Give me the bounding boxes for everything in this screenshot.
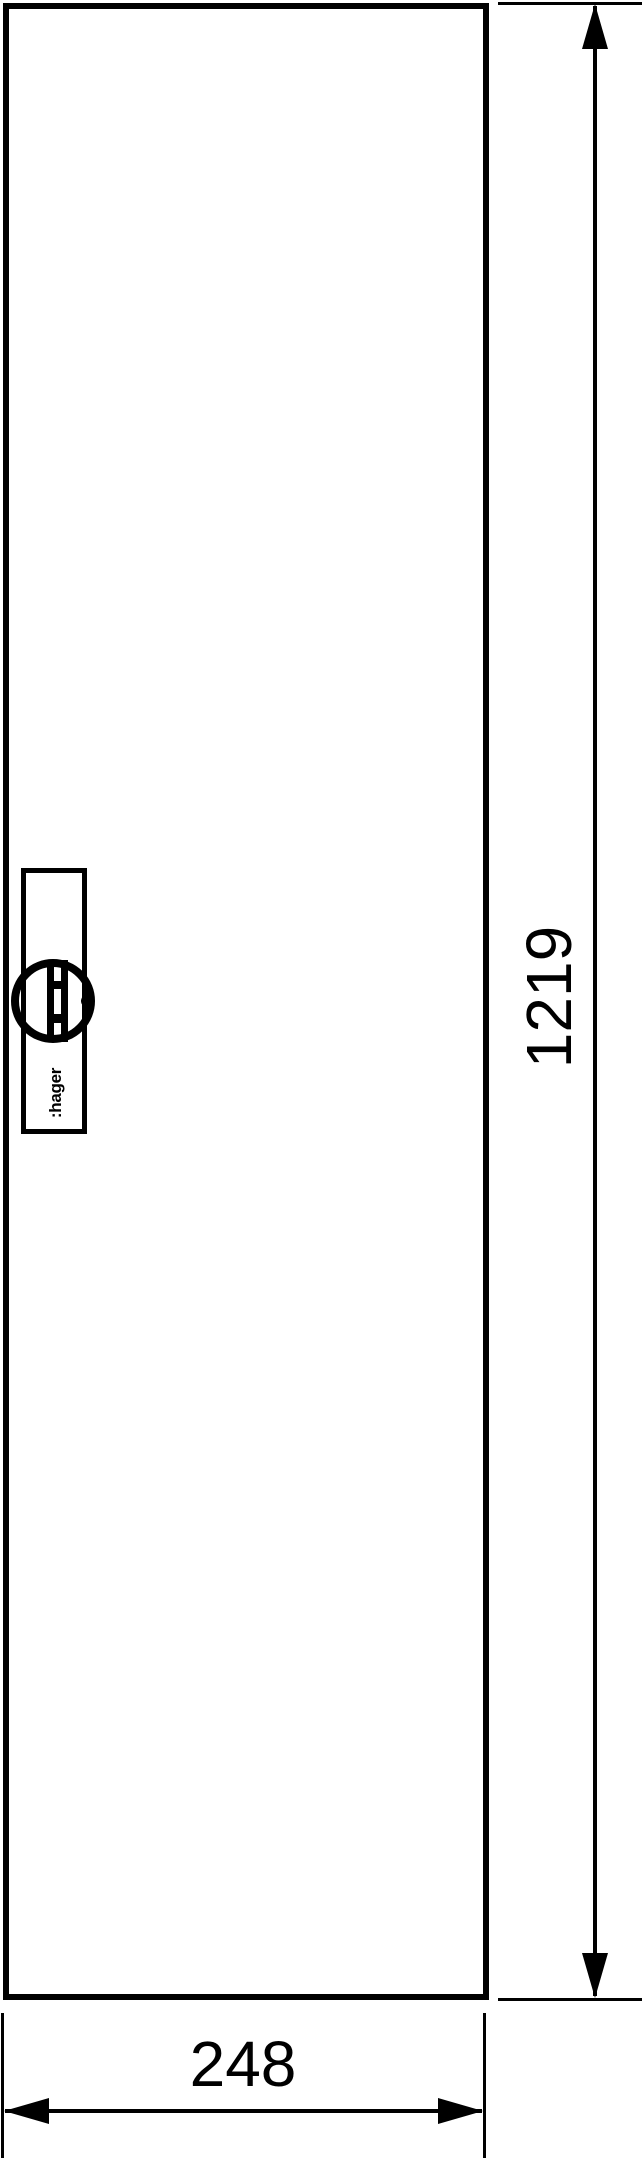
brand-logo-text: :hager	[44, 1033, 68, 1153]
arrow-left-icon	[4, 2098, 49, 2124]
width-dim-line	[5, 2109, 482, 2113]
keyway-lower-bit	[54, 1014, 61, 1023]
height-dim-extension-bottom	[498, 1998, 642, 2001]
width-dim-label: 248	[93, 2032, 393, 2096]
lock-notch-dot-icon	[81, 995, 93, 1007]
keyway-left-rail	[47, 960, 54, 1042]
height-dim-label: 1219	[517, 847, 581, 1147]
height-dim-line	[593, 6, 597, 1996]
technical-drawing-canvas: :hager 1219 248	[0, 0, 642, 2160]
keyway-right-rail	[61, 960, 68, 1042]
arrow-down-icon	[582, 1953, 608, 1998]
height-dim-extension-top	[498, 2, 642, 5]
keyway-upper-bit	[54, 981, 61, 989]
arrow-up-icon	[582, 4, 608, 49]
width-dim-extension-right	[483, 2013, 486, 2158]
width-dim-extension-left	[1, 2013, 4, 2158]
arrow-right-icon	[438, 2098, 483, 2124]
